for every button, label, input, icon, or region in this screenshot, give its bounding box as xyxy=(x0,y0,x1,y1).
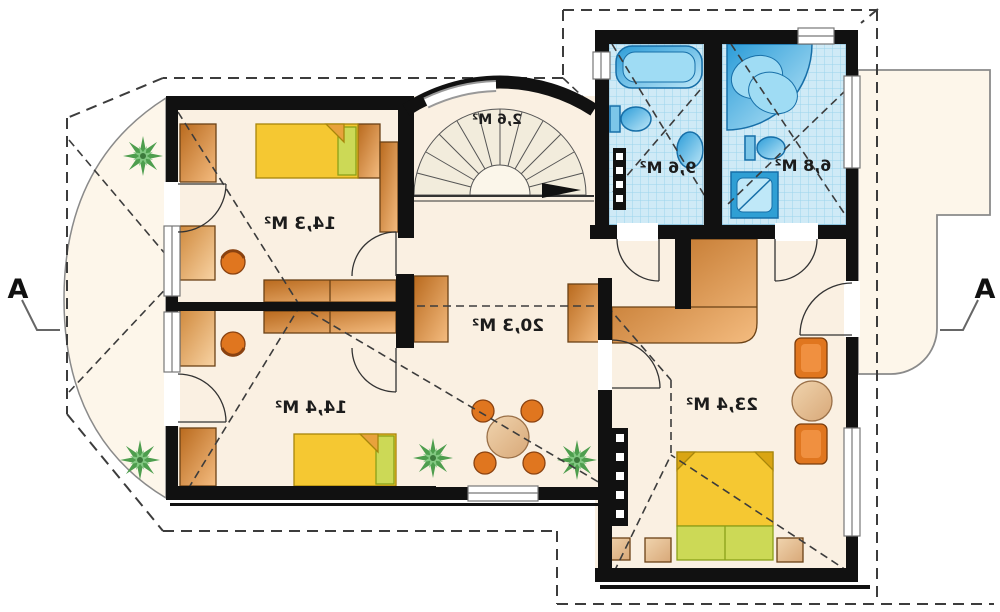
toilet-bathroom1 xyxy=(610,106,651,132)
floor-plan-drawing: 14,3 M² 2,6 M² 9,6 M² 6,8 M² 20,3 M² 14,… xyxy=(0,0,1000,612)
bedroom1-tall-wardrobe xyxy=(380,142,398,232)
label-staircase: 2,6 M² xyxy=(472,112,522,128)
bedroom1-headboard-cabinet xyxy=(358,124,380,178)
window-bedroom1 xyxy=(164,226,180,296)
plant-hall-right xyxy=(557,440,597,480)
label-bathroom2: 6,8 M² xyxy=(775,156,832,175)
radiator-master xyxy=(612,428,628,526)
section-marker-a-left: A xyxy=(8,274,29,305)
window-bathroom2-top xyxy=(798,28,834,44)
master-nightstand-left xyxy=(645,538,671,562)
label-hall: 20,3 M² xyxy=(472,316,544,336)
label-bathroom1: 9,6 M² xyxy=(640,158,697,177)
master-armchairs xyxy=(792,338,832,464)
label-bedroom1: 14,3 M² xyxy=(264,214,336,234)
bedroom1-desk xyxy=(180,226,215,280)
floor-plan-page: 14,3 M² 2,6 M² 9,6 M² 6,8 M² 20,3 M² 14,… xyxy=(0,0,1000,612)
window-hall xyxy=(468,486,538,501)
window-master xyxy=(844,428,860,536)
radiator-stairs xyxy=(613,148,626,210)
window-bathroom2-side xyxy=(844,76,860,168)
bedroom1-wardrobe xyxy=(180,124,216,182)
bedroom2-bed xyxy=(294,434,396,486)
bedroom2-desk xyxy=(180,310,215,366)
plant-balcony-top xyxy=(123,136,163,176)
bedroom1-desk-chair xyxy=(221,250,245,274)
window-bedroom2 xyxy=(164,312,180,372)
master-nightstand-right xyxy=(777,538,803,562)
bedroom1-bed xyxy=(256,124,358,178)
window-bathroom1 xyxy=(593,52,610,79)
label-bedroom2: 14,4 M² xyxy=(275,398,347,418)
bedroom2-desk-chair xyxy=(221,332,245,356)
bedroom2-wardrobe xyxy=(180,428,216,486)
plant-balcony-bottom xyxy=(120,440,160,480)
plant-hall-left xyxy=(413,438,453,478)
label-master: 23,4 M² xyxy=(686,395,758,415)
